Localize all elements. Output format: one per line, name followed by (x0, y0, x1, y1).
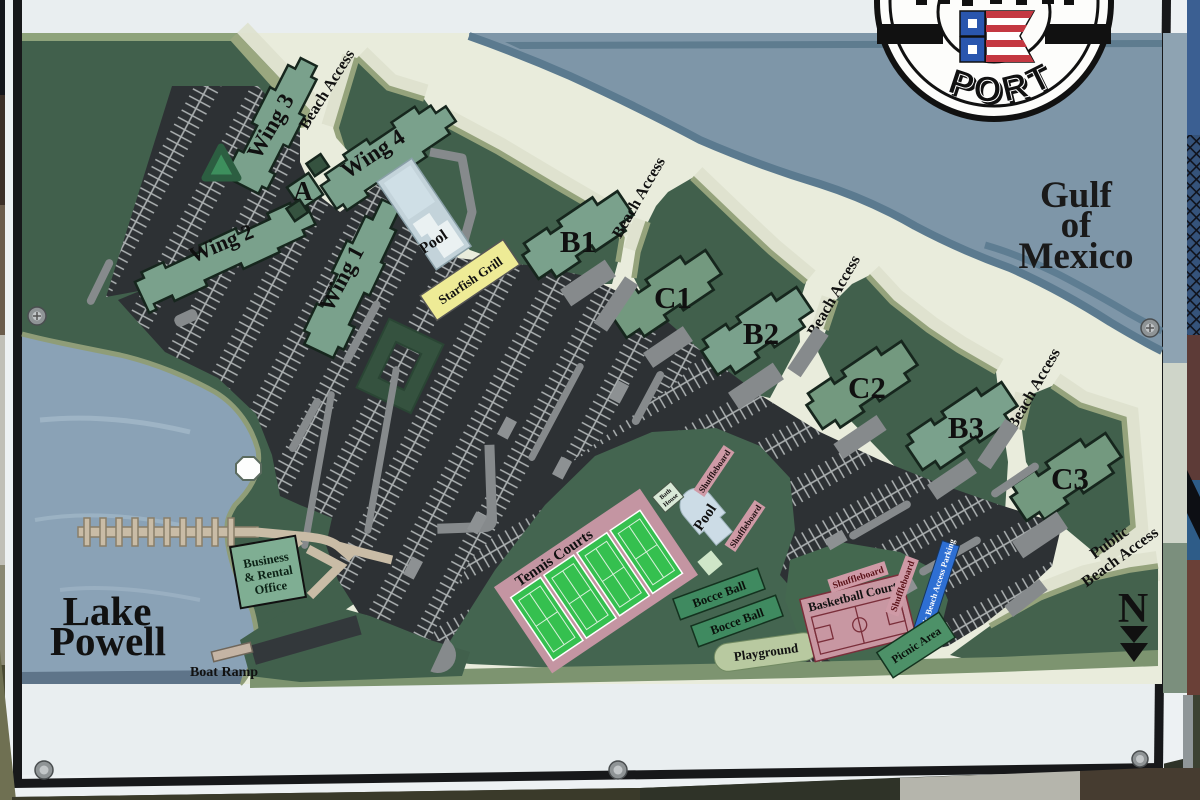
svg-text:C3: C3 (1051, 461, 1089, 496)
svg-text:B2: B2 (743, 316, 779, 351)
svg-text:N: N (1118, 586, 1148, 632)
svg-text:Mexico: Mexico (1018, 236, 1133, 277)
svg-text:A: A (293, 176, 313, 206)
svg-text:B3: B3 (948, 410, 984, 445)
svg-text:C1: C1 (654, 280, 692, 315)
svg-text:Powell: Powell (50, 618, 166, 664)
svg-text:Boat Ramp: Boat Ramp (190, 665, 258, 680)
svg-text:C2: C2 (848, 370, 886, 405)
svg-text:B1: B1 (560, 224, 596, 259)
